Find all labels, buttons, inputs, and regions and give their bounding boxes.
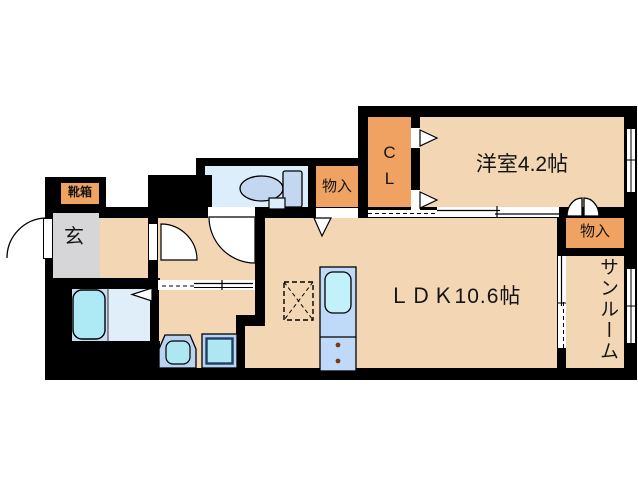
- bathroom-floor: [70, 288, 108, 342]
- wall-ldk-west-lower: [236, 326, 245, 370]
- closet-door-slot-upper: [411, 128, 420, 148]
- closet-label: C L: [368, 140, 411, 193]
- sunroom-window: [626, 268, 636, 344]
- entry-door-leaf: [43, 218, 53, 259]
- wall-toilet-top: [196, 158, 368, 166]
- floor-plan: 洋室4.2帖 ＬＤＫ10.6帖 サンルーム C L 物入 物入 玄 靴箱: [0, 0, 638, 480]
- wall-bath-washroom-partition: [150, 278, 159, 368]
- wall-bottom: [45, 368, 637, 380]
- storage-right-label: 物入: [566, 223, 624, 240]
- entry-door-swing-arc: [7, 218, 46, 258]
- western-room-label: 洋室4.2帖: [420, 153, 624, 177]
- corridor-door-leaf: [148, 223, 158, 261]
- sunroom-label: サンルーム: [588, 257, 618, 371]
- hall-floor: [100, 218, 148, 278]
- washroom-sliding-door: [158, 280, 255, 290]
- toilet-door-opening: [208, 207, 255, 218]
- western-room-window: [626, 128, 636, 193]
- wall-block-nw-of-corridor: [148, 175, 212, 218]
- shower-floor: [108, 288, 152, 342]
- wall-sw-mass: [45, 283, 72, 380]
- shoe-box-label: 靴箱: [61, 186, 99, 200]
- closet-door-slot-lower: [411, 190, 420, 210]
- wall-top: [360, 106, 637, 117]
- entrance-label: 玄: [64, 226, 84, 249]
- wall-ldk-west-jog: [236, 315, 265, 326]
- western-ldk-sliding-door: [437, 207, 559, 217]
- wall-ldk-west: [255, 207, 265, 316]
- toilet-room-floor: [205, 165, 308, 208]
- storage-top-opening: [316, 208, 358, 218]
- wall-sunroom-storage-divider: [557, 248, 637, 256]
- closet-sliding-track: [368, 210, 437, 217]
- wall-toilet-storage-divider: [308, 158, 316, 218]
- storage-top-label: 物入: [316, 178, 358, 195]
- ldk-label: ＬＤＫ10.6帖: [350, 285, 560, 309]
